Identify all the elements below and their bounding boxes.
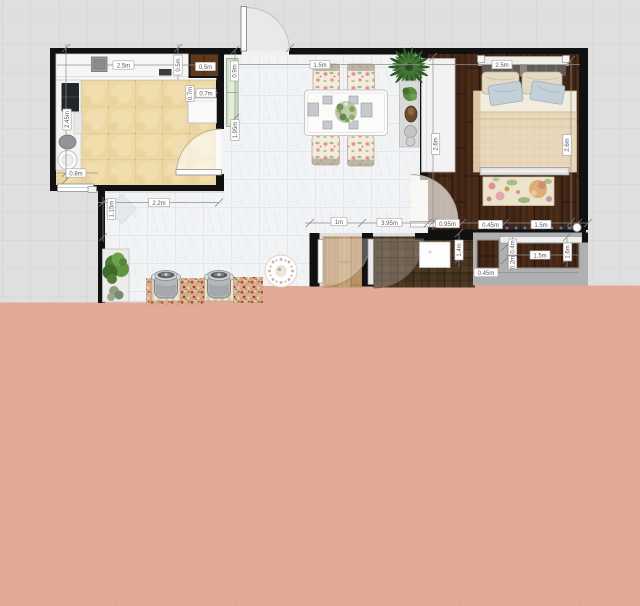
svg-text:0.45m: 0.45m [478,271,495,277]
svg-text:0.45m: 0.45m [482,223,499,229]
svg-text:2.45m: 2.45m [65,111,71,128]
svg-text:2.5m: 2.5m [495,63,508,69]
svg-text:0.5m: 0.5m [176,58,182,71]
svg-text:3.95m: 3.95m [381,221,398,227]
svg-text:2.6m: 2.6m [434,137,440,150]
svg-text:0.8m: 0.8m [69,171,82,177]
svg-text:0.4m: 0.4m [511,240,517,253]
svg-text:1.95m: 1.95m [233,122,239,139]
svg-text:0.2m: 0.2m [511,256,517,269]
svg-text:1.4m: 1.4m [457,243,463,256]
svg-text:2.5m: 2.5m [117,63,130,69]
svg-text:0.7m: 0.7m [199,91,212,97]
svg-text:1.6m: 1.6m [566,245,572,258]
svg-text:1.15m: 1.15m [110,201,116,218]
svg-text:2.6m: 2.6m [565,138,571,151]
svg-text:0.5m: 0.5m [199,65,212,71]
svg-text:1.5m: 1.5m [534,223,547,229]
svg-text:1.5m: 1.5m [533,253,546,259]
svg-text:0.9m: 0.9m [233,64,239,77]
svg-text:0.95m: 0.95m [439,222,456,228]
svg-text:0.7m: 0.7m [188,87,194,100]
svg-text:1m: 1m [335,220,343,226]
svg-text:1.5m: 1.5m [313,63,326,69]
svg-text:2.2m: 2.2m [152,201,165,207]
